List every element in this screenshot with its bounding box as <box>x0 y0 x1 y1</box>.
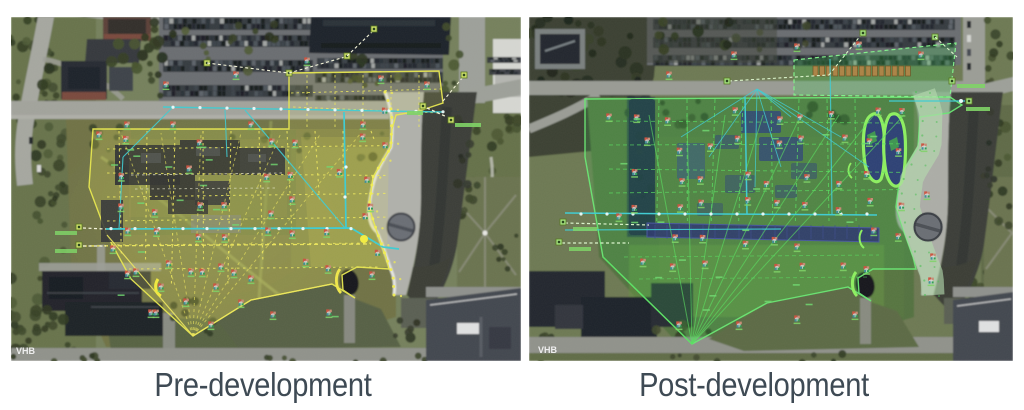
svg-text:VHB: VHB <box>16 346 36 356</box>
svg-text:VHB: VHB <box>538 345 558 355</box>
